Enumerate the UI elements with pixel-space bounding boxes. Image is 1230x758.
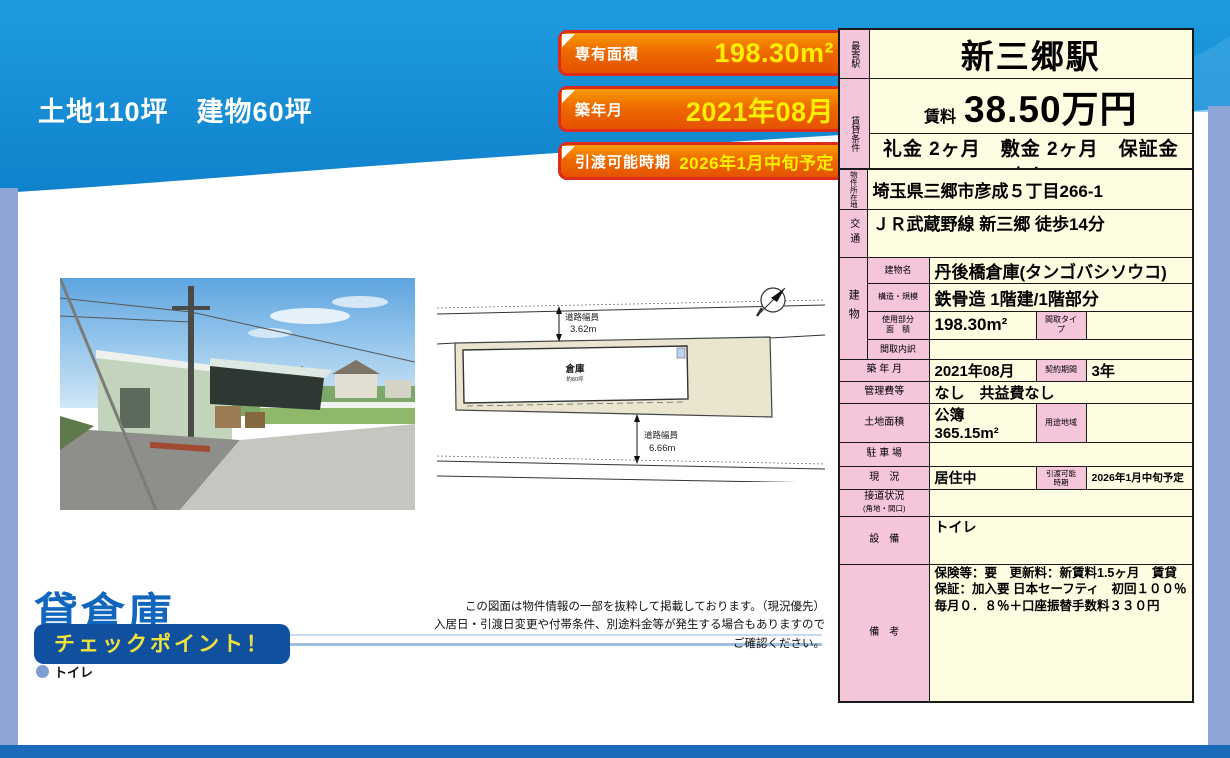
status-label: 現 況 xyxy=(839,466,929,489)
road-contact-label: 接道状況 (角地・間口) xyxy=(839,489,929,516)
road-contact-value xyxy=(929,489,1193,516)
handover-label: 引渡可能 時期 xyxy=(1036,466,1086,489)
rent-value: 38.50万円 xyxy=(964,89,1138,130)
badge-corner-fold xyxy=(562,90,575,103)
badge-corner-fold xyxy=(562,146,575,159)
headline: 土地110坪 建物60坪 築浅倉庫 xyxy=(38,24,313,309)
rent-cell: 賃料38.50万円 xyxy=(869,79,1193,134)
building-header: 建物 xyxy=(839,257,867,359)
access-value: ＪＲ武蔵野線 新三郷 徒歩14分 xyxy=(867,209,1193,257)
parking-value xyxy=(929,442,1193,466)
fees-value: なし 共益費なし xyxy=(929,381,1193,403)
plan-road-width-bottom-value: 6.66m xyxy=(649,443,675,454)
zone-label: 用途地域 xyxy=(1036,403,1086,442)
equipment-value: トイレ xyxy=(929,516,1193,564)
handover-value: 2026年1月中旬予定 xyxy=(1086,466,1193,489)
building-name-label: 建物名 xyxy=(867,257,929,283)
plan-building-sublabel: 約60坪 xyxy=(566,375,584,383)
right-accent-bar xyxy=(1208,106,1230,745)
zone-value xyxy=(1086,403,1193,442)
structure-value: 鉄骨造 1階建/1階部分 xyxy=(929,283,1193,311)
badge-value: 2021年08月 xyxy=(686,90,834,129)
disclaimer-line1: この図面は物件情報の一部を抜粋して掲載しております。（現況優先） xyxy=(423,598,825,616)
station-value: 新三郷駅 xyxy=(869,29,1193,79)
left-accent-bar xyxy=(0,188,18,745)
plan-road-width-top-value: 3.62m xyxy=(570,324,596,335)
disclaimer: この図面は物件情報の一部を抜粋して掲載しております。（現況優先） 入居日・引渡日… xyxy=(423,598,825,653)
headline-line2: 築浅倉庫 xyxy=(38,202,313,238)
summary-table: 最寄駅 新三郷駅 賃貸条件 賃料38.50万円 礼金 2ヶ月 敷金 2ヶ月 保証… xyxy=(838,28,1194,190)
built-label: 築 年 月 xyxy=(839,359,929,381)
badge-value: 2026年1月中旬予定 xyxy=(679,149,834,174)
flyer-page: 土地110坪 建物60坪 築浅倉庫 専有面積 198.30m² 築年月 2021… xyxy=(0,0,1230,758)
site-plan: 倉庫 約60坪 道路幅員 3.62m 道路幅員 6.66m xyxy=(437,280,825,482)
status-value: 居住中 xyxy=(929,466,1036,489)
notes-label: 備 考 xyxy=(839,564,929,702)
contract-value: 3年 xyxy=(1086,359,1193,381)
station-header: 最寄駅 xyxy=(839,29,869,79)
equipment-label: 設 備 xyxy=(839,516,929,564)
location-value: 埼玉県三郷市彦成５丁目266-1 xyxy=(867,169,1193,209)
plan-road-width-bottom-label: 道路幅員 xyxy=(644,430,679,440)
parking-label: 駐 車 場 xyxy=(839,442,929,466)
plan-annex-mark xyxy=(677,348,685,358)
land-label: 土地面積 xyxy=(839,403,929,442)
fees-label: 管理費等 xyxy=(839,381,929,403)
disclaimer-line2: 入居日・引渡日変更や付帯条件、別途料金等が発生する場合もありますのでご確認くださ… xyxy=(423,616,825,653)
badge-label: 築年月 xyxy=(575,99,623,120)
details-table: 物件所在地 埼玉県三郷市彦成５丁目266-1 交通 ＪＲ武蔵野線 新三郷 徒歩1… xyxy=(838,168,1194,703)
badge-built-date: 築年月 2021年08月 xyxy=(558,86,849,132)
built-value: 2021年08月 xyxy=(929,359,1036,381)
used-area-value: 198.30m² xyxy=(929,311,1036,339)
compass-icon xyxy=(757,288,785,316)
checkpoint-badge: チェックポイント！ xyxy=(34,624,290,664)
badge-label: 引渡可能時期 xyxy=(575,151,671,172)
badge-floor-area: 専有面積 198.30m² xyxy=(558,30,849,76)
badge-value: 198.30m² xyxy=(714,38,834,69)
plan-road-width-top-label: 道路幅員 xyxy=(565,312,600,322)
badge-label: 専有面積 xyxy=(575,43,639,64)
madori-type-value xyxy=(1086,311,1193,339)
plan-building-label: 倉庫 xyxy=(564,363,585,375)
location-header: 物件所在地 xyxy=(839,169,867,209)
madori-type-label: 間取タイプ xyxy=(1036,311,1086,339)
checkpoint-item: トイレ xyxy=(36,662,93,681)
madori-detail-label: 間取内訳 xyxy=(867,339,929,359)
building-name-value: 丹後橋倉庫(タンゴバシソウコ) xyxy=(929,257,1193,283)
bullet-icon xyxy=(36,665,49,678)
badge-handover-date: 引渡可能時期 2026年1月中旬予定 xyxy=(558,142,849,180)
madori-detail-value xyxy=(929,339,1193,359)
checkpoint-item-label: トイレ xyxy=(54,662,93,681)
notes-value: 保険等：要 更新料：新賃料1.5ヶ月 賃貸保証：加入要 日本セーフティ 初回１０… xyxy=(929,564,1193,702)
badge-corner-fold xyxy=(562,34,575,47)
headline-line1: 土地110坪 建物60坪 xyxy=(38,95,313,131)
used-area-label: 使用部分 面 積 xyxy=(867,311,929,339)
property-photo xyxy=(60,278,415,510)
access-header: 交通 xyxy=(839,209,867,257)
land-value: 公簿 365.15m² xyxy=(929,403,1036,442)
bottom-accent-bar xyxy=(0,745,1230,758)
structure-label: 構造・規模 xyxy=(867,283,929,311)
contract-label: 契約期間 xyxy=(1036,359,1086,381)
rent-label: 賃料 xyxy=(924,109,956,126)
